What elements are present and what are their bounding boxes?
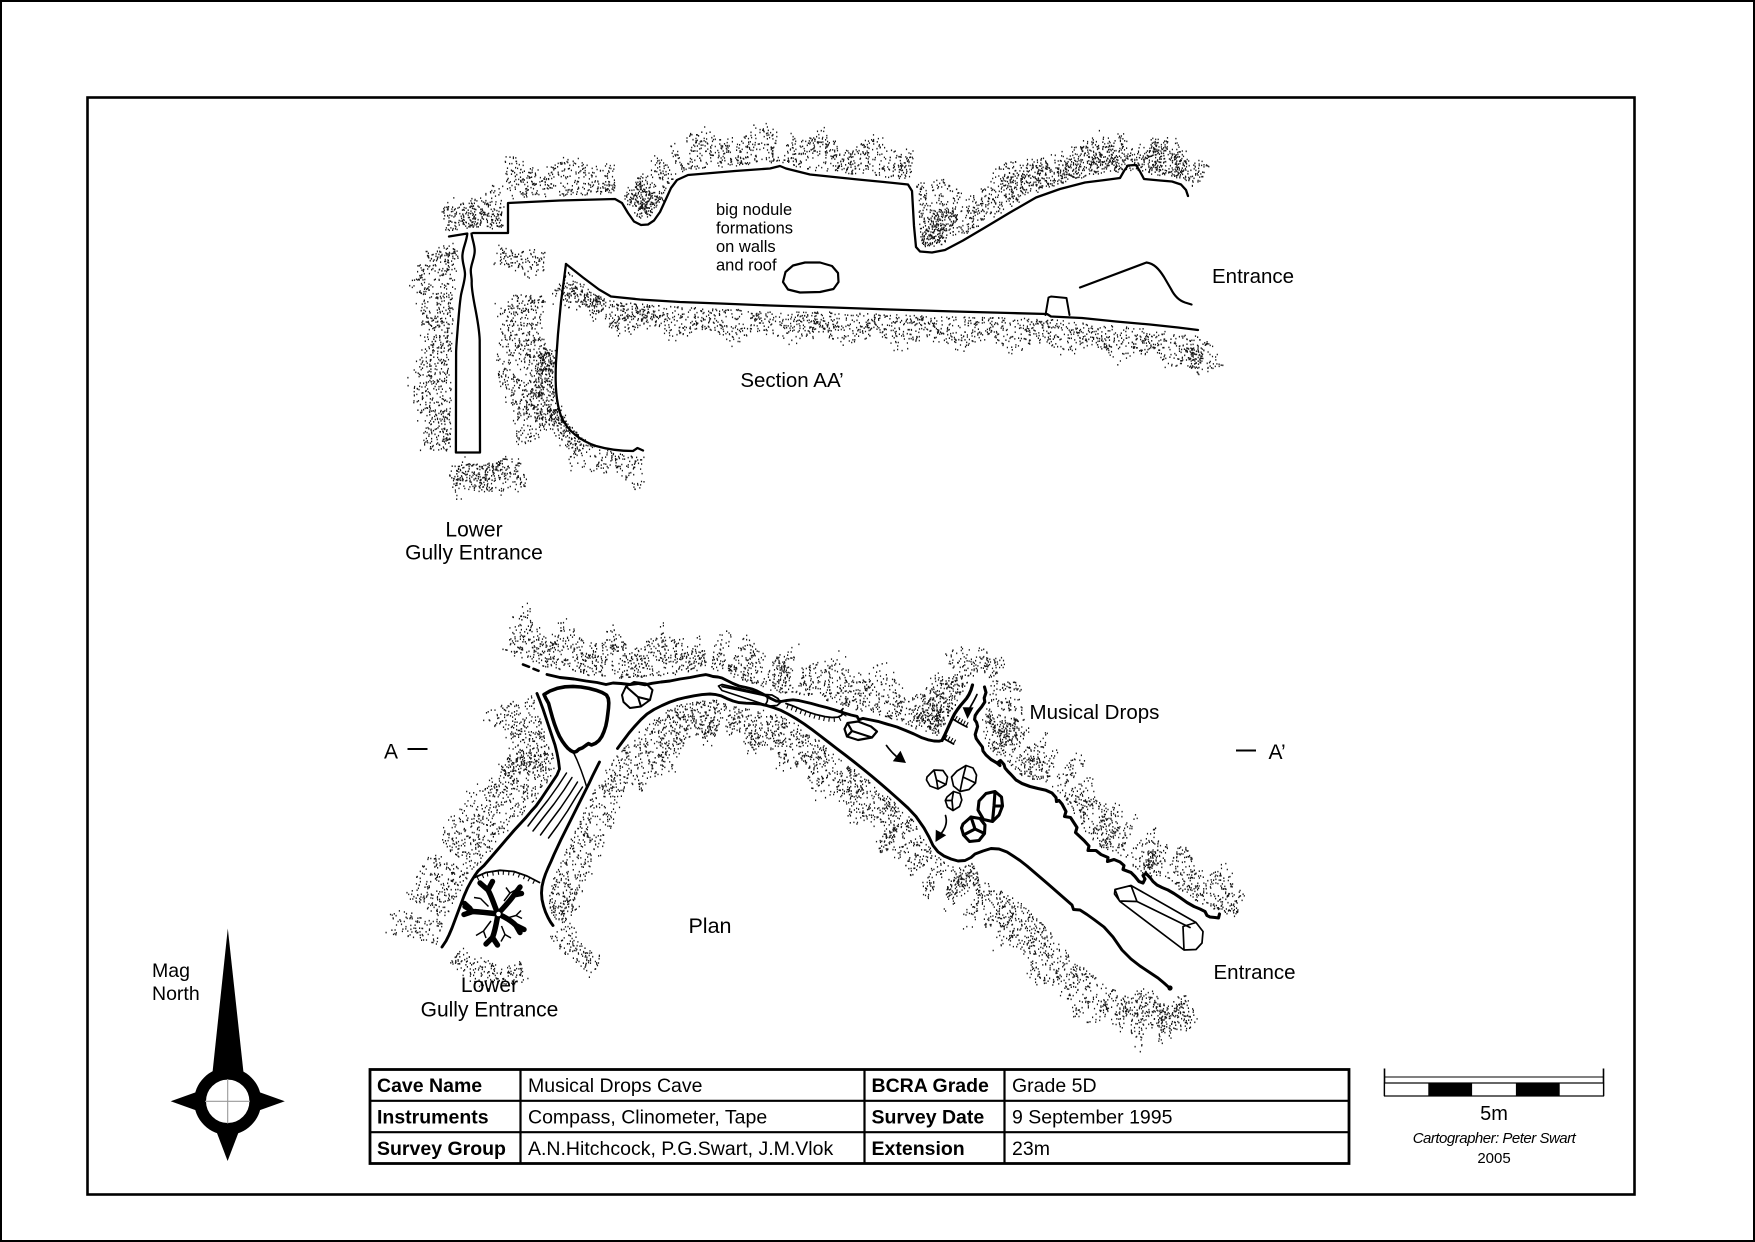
svg-text:and roof: and roof bbox=[716, 257, 777, 275]
svg-text:Compass, Clinometer, Tape: Compass, Clinometer, Tape bbox=[528, 1107, 767, 1129]
svg-text:2005: 2005 bbox=[1477, 1150, 1510, 1167]
svg-text:Cave Name: Cave Name bbox=[377, 1075, 482, 1097]
svg-text:Gully Entrance: Gully Entrance bbox=[405, 542, 543, 565]
svg-text:Lower: Lower bbox=[445, 519, 502, 542]
svg-text:A: A bbox=[384, 741, 398, 764]
svg-text:Instruments: Instruments bbox=[377, 1107, 489, 1129]
svg-text:Cartographer: Peter Swart: Cartographer: Peter Swart bbox=[1413, 1130, 1577, 1147]
svg-text:Mag: Mag bbox=[152, 960, 190, 982]
svg-text:Section AA’: Section AA’ bbox=[740, 369, 843, 392]
svg-text:BCRA Grade: BCRA Grade bbox=[872, 1075, 990, 1097]
svg-text:Survey Group: Survey Group bbox=[377, 1138, 506, 1160]
svg-text:Lower: Lower bbox=[461, 974, 518, 997]
svg-text:5m: 5m bbox=[1480, 1103, 1508, 1125]
svg-text:Gully Entrance: Gully Entrance bbox=[421, 999, 559, 1022]
svg-text:Grade 5D: Grade 5D bbox=[1012, 1075, 1097, 1097]
svg-text:formations: formations bbox=[716, 220, 793, 238]
svg-text:9 September 1995: 9 September 1995 bbox=[1012, 1107, 1173, 1129]
svg-text:A’: A’ bbox=[1269, 741, 1286, 764]
svg-text:North: North bbox=[152, 983, 200, 1005]
svg-text:Survey Date: Survey Date bbox=[872, 1107, 985, 1129]
svg-text:Entrance: Entrance bbox=[1214, 961, 1296, 984]
svg-text:A.N.Hitchcock, P.G.Swart, J.M.: A.N.Hitchcock, P.G.Swart, J.M.Vlok bbox=[528, 1138, 833, 1160]
svg-text:Musical Drops: Musical Drops bbox=[1030, 701, 1160, 724]
svg-text:Musical Drops Cave: Musical Drops Cave bbox=[528, 1075, 702, 1097]
svg-text:Plan: Plan bbox=[688, 914, 731, 938]
svg-text:23m: 23m bbox=[1012, 1138, 1050, 1160]
svg-text:on walls: on walls bbox=[716, 238, 776, 256]
svg-text:big nodule: big nodule bbox=[716, 201, 792, 219]
svg-text:Entrance: Entrance bbox=[1212, 265, 1294, 288]
svg-text:Extension: Extension bbox=[872, 1138, 965, 1160]
